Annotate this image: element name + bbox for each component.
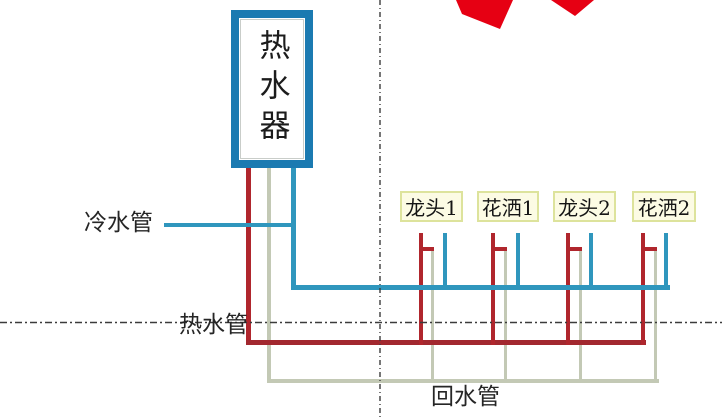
fixture-3-connector <box>566 247 582 251</box>
fixture-1-return-pipe <box>431 250 434 383</box>
cold-pipe-label: 冷水管 <box>84 211 153 235</box>
fixture-1-connector <box>419 247 434 251</box>
hot-pipe-main <box>246 340 646 345</box>
fixture-label-faucet-1: 龙头1 <box>400 191 463 222</box>
fixture-4-connector <box>641 247 657 251</box>
fixture-2-return-pipe <box>504 250 507 383</box>
fixture-4-cold-pipe <box>664 233 668 290</box>
cold-pipe-main <box>291 285 670 290</box>
red-logo-fragment-right <box>551 0 594 16</box>
hot-pipe-label: 热水管 <box>179 313 248 337</box>
water-heater-panel: 热水器 <box>240 19 304 159</box>
return-pipe-main <box>267 379 659 383</box>
red-logo-fragment-left <box>456 0 513 29</box>
heater-return-pipe-vertical <box>267 166 271 381</box>
fixture-label-shower-2: 花洒2 <box>632 191 696 222</box>
return-pipe-label: 回水管 <box>431 385 500 409</box>
fixture-label-shower-1: 花洒1 <box>477 191 539 222</box>
fixture-1-cold-pipe <box>443 233 447 290</box>
plumbing-diagram: 热水器 冷水管 热水管 回水管 龙头1 花洒1 龙头2 花洒2 <box>0 0 722 418</box>
water-heater-label: 热水器 <box>250 29 295 149</box>
fixture-4-return-pipe <box>654 250 657 383</box>
water-heater: 热水器 <box>231 10 313 168</box>
fixture-2-connector <box>491 247 507 251</box>
fixture-label-faucet-2: 龙头2 <box>553 191 616 222</box>
fixture-2-cold-pipe <box>516 233 520 290</box>
fixture-3-return-pipe <box>579 250 582 383</box>
heater-cold-pipe-vertical <box>291 166 296 287</box>
fixture-3-cold-pipe <box>589 233 593 290</box>
cold-inlet-pipe <box>164 223 294 227</box>
